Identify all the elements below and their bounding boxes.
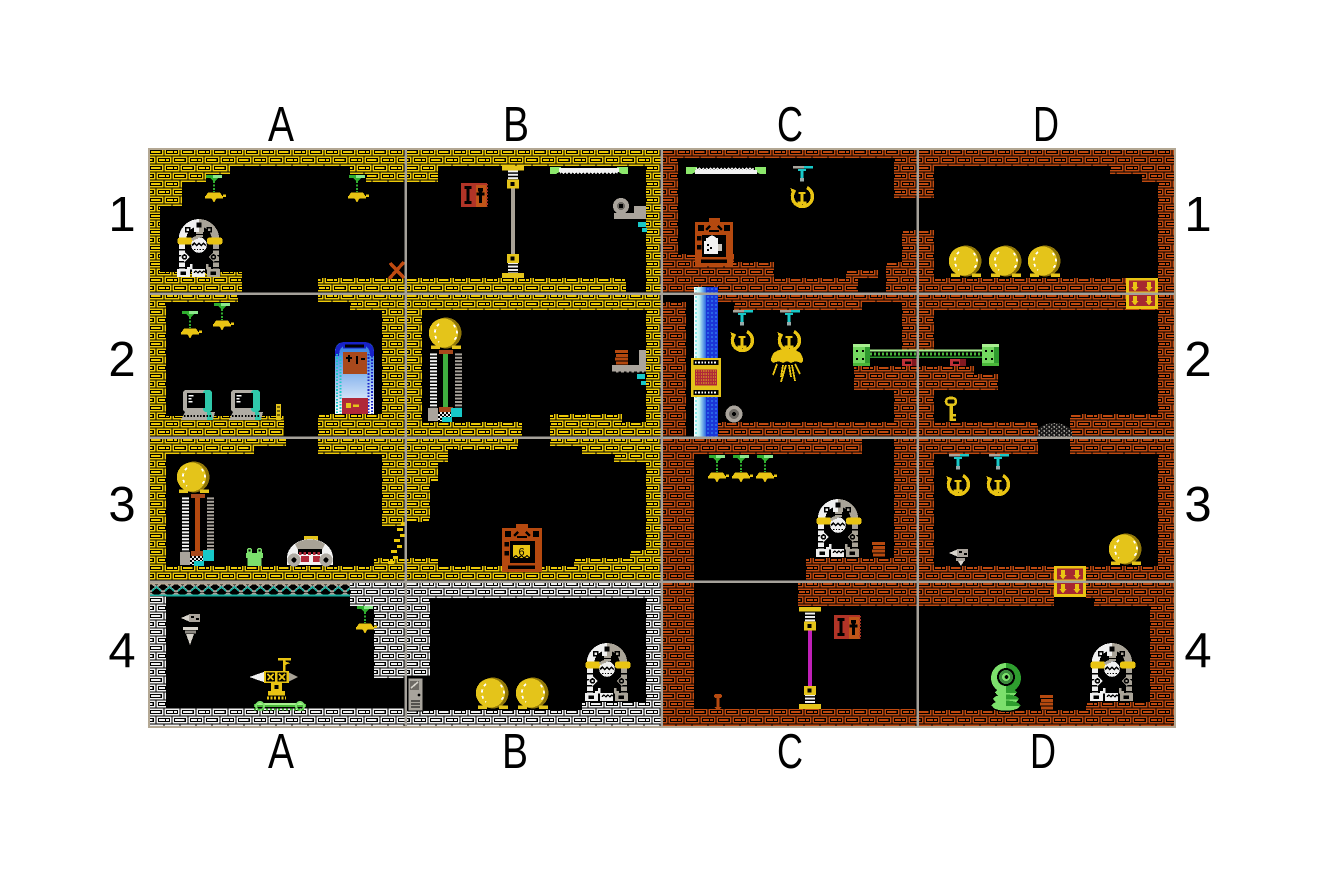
svg-text:C: C [777,725,803,779]
svg-text:1: 1 [1184,188,1211,242]
svg-text:2: 2 [108,333,135,387]
svg-text:2: 2 [1184,333,1211,387]
svg-text:D: D [1030,725,1056,779]
svg-text:B: B [502,725,528,779]
svg-text:B: B [503,98,529,152]
svg-text:D: D [1033,98,1059,152]
svg-text:C: C [777,98,803,152]
svg-text:A: A [268,725,294,779]
svg-text:3: 3 [1184,478,1211,532]
svg-text:4: 4 [1184,624,1211,678]
svg-text:1: 1 [108,188,135,242]
svg-text:3: 3 [108,478,135,532]
svg-text:4: 4 [108,624,135,678]
svg-text:A: A [268,98,294,152]
